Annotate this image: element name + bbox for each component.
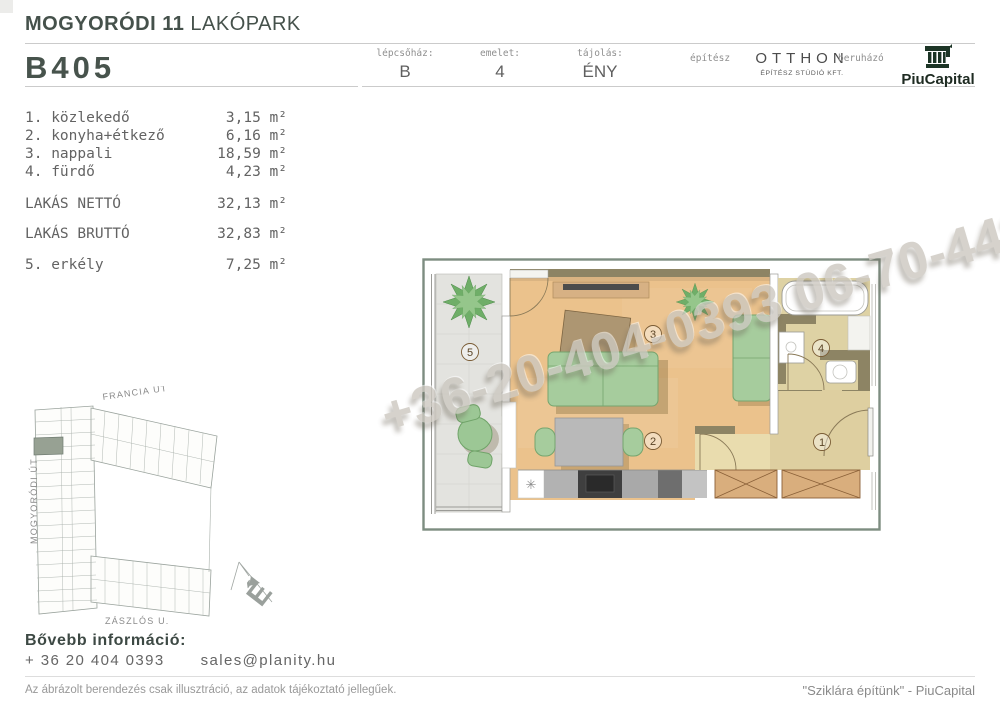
footer-divider <box>25 676 975 677</box>
room-area: 18,59 m² <box>217 146 287 162</box>
orientation-value: ÉNY <box>560 62 640 82</box>
total-area: 32,83 m² <box>217 226 287 242</box>
contact-phone: + 36 20 404 0393 <box>25 652 165 669</box>
plant-icon <box>443 276 495 328</box>
tv-icon <box>563 284 639 290</box>
room-row-2: 2. konyha+étkező6,16 m² <box>25 128 287 144</box>
footer-disclaimer: Az ábrázolt berendezés csak illusztráció… <box>25 684 396 696</box>
staircase-label: lépcsőház: <box>365 48 445 59</box>
room-number-bath: 4 <box>818 343 824 355</box>
footer-slogan: "Sziklára építünk" - PiuCapital <box>802 683 975 698</box>
room-label: 1. közlekedő <box>25 110 130 126</box>
floor-label: emelet: <box>460 48 540 59</box>
total-label: LAKÁS NETTÓ <box>25 196 121 212</box>
floor-value: 4 <box>460 62 540 82</box>
tv-console <box>553 282 649 298</box>
column-notch <box>502 402 516 468</box>
street-label-left: MOGYORÓDI ÚT <box>29 458 39 544</box>
unit-id: B405 <box>25 50 115 86</box>
bath-shelf <box>848 316 870 350</box>
total-net-row: LAKÁS NETTÓ32,13 m² <box>25 196 287 212</box>
bathtub-icon <box>782 281 868 315</box>
room-area: 7,25 m² <box>226 257 287 273</box>
architect-label: építész <box>690 53 730 64</box>
room-label: 5. erkély <box>25 257 104 273</box>
meta-orientation: tájolás: ÉNY <box>560 48 640 82</box>
compass-icon: É <box>231 562 279 612</box>
sink-unit-icon <box>779 332 804 363</box>
room-label: 4. fürdő <box>25 164 95 180</box>
room-row-balcony: 5. erkély7,25 m² <box>25 257 287 273</box>
contact-heading: Bővebb információ: <box>25 632 186 650</box>
orientation-label: tájolás: <box>560 48 640 59</box>
room-number-dining: 2 <box>650 436 656 448</box>
project-title-light: LAKÓPARK <box>184 13 300 35</box>
project-title-bold: MOGYORÓDI 11 <box>25 13 184 35</box>
developer-label: beruházó <box>838 53 884 64</box>
partition-wall <box>770 274 778 434</box>
floor-plan: ✳ <box>422 258 881 531</box>
meta-underline <box>362 86 975 87</box>
meta-staircase: lépcsőház: B <box>365 48 445 82</box>
balcony-door <box>510 270 548 278</box>
unit-id-underline <box>25 86 358 87</box>
developer-name: PiuCapital <box>901 71 974 88</box>
contact-email[interactable]: sales@planity.hu <box>201 652 337 669</box>
room-number-living: 3 <box>650 329 656 341</box>
bathroom-area <box>778 278 870 390</box>
wardrobe-icon <box>715 470 777 498</box>
highlighted-unit <box>34 437 63 455</box>
room-row-1: 1. közlekedő3,15 m² <box>25 110 287 126</box>
developer-logo: PiuCapital <box>898 44 978 88</box>
street-label-top: FRANCIA ÚT <box>102 386 168 402</box>
sofa <box>548 352 668 414</box>
room-area: 3,15 m² <box>226 110 287 126</box>
header-divider <box>25 43 975 44</box>
total-area: 32,13 m² <box>217 196 287 212</box>
datasheet-page: MOGYORÓDI 11 LAKÓPARK B405 lépcsőház: B … <box>0 0 1000 707</box>
project-title: MOGYORÓDI 11 LAKÓPARK <box>25 13 301 36</box>
site-map: FRANCIA ÚT MOGYORÓDI ÚT ZÁSZLÓS U. É <box>25 386 295 634</box>
architect-sub: ÉPÍTÉSZ STÚDIÓ KFT. <box>742 70 862 77</box>
staircase-value: B <box>365 62 445 82</box>
armchair-right <box>733 315 776 406</box>
total-gross-row: LAKÁS BRUTTÓ32,83 m² <box>25 226 287 242</box>
entrance-door <box>868 408 873 456</box>
room-area: 4,23 m² <box>226 164 287 180</box>
plant-icon <box>676 283 713 320</box>
contact-row: + 36 20 404 0393 sales@planity.hu <box>25 652 336 669</box>
room-label: 3. nappali <box>25 146 112 162</box>
room-number-hall: 1 <box>819 437 825 449</box>
room-number-balcony: 5 <box>467 347 473 359</box>
toilet-icon <box>826 361 856 383</box>
room-label: 2. konyha+étkező <box>25 128 165 144</box>
sink-icon: ✳ <box>526 477 537 492</box>
corner-artifact <box>0 0 13 13</box>
room-area: 6,16 m² <box>226 128 287 144</box>
piucapital-column-icon <box>922 44 954 70</box>
room-row-4: 4. fürdő4,23 m² <box>25 164 287 180</box>
total-label: LAKÁS BRUTTÓ <box>25 226 130 242</box>
wardrobe-icon <box>782 470 860 498</box>
meta-floor: emelet: 4 <box>460 48 540 82</box>
compass-letter: É <box>240 576 279 613</box>
stove-icon <box>586 475 614 492</box>
kitchen-counter: ✳ <box>518 470 707 498</box>
street-label-bottom: ZÁSZLÓS U. <box>105 616 170 626</box>
room-row-3: 3. nappali18,59 m² <box>25 146 287 162</box>
